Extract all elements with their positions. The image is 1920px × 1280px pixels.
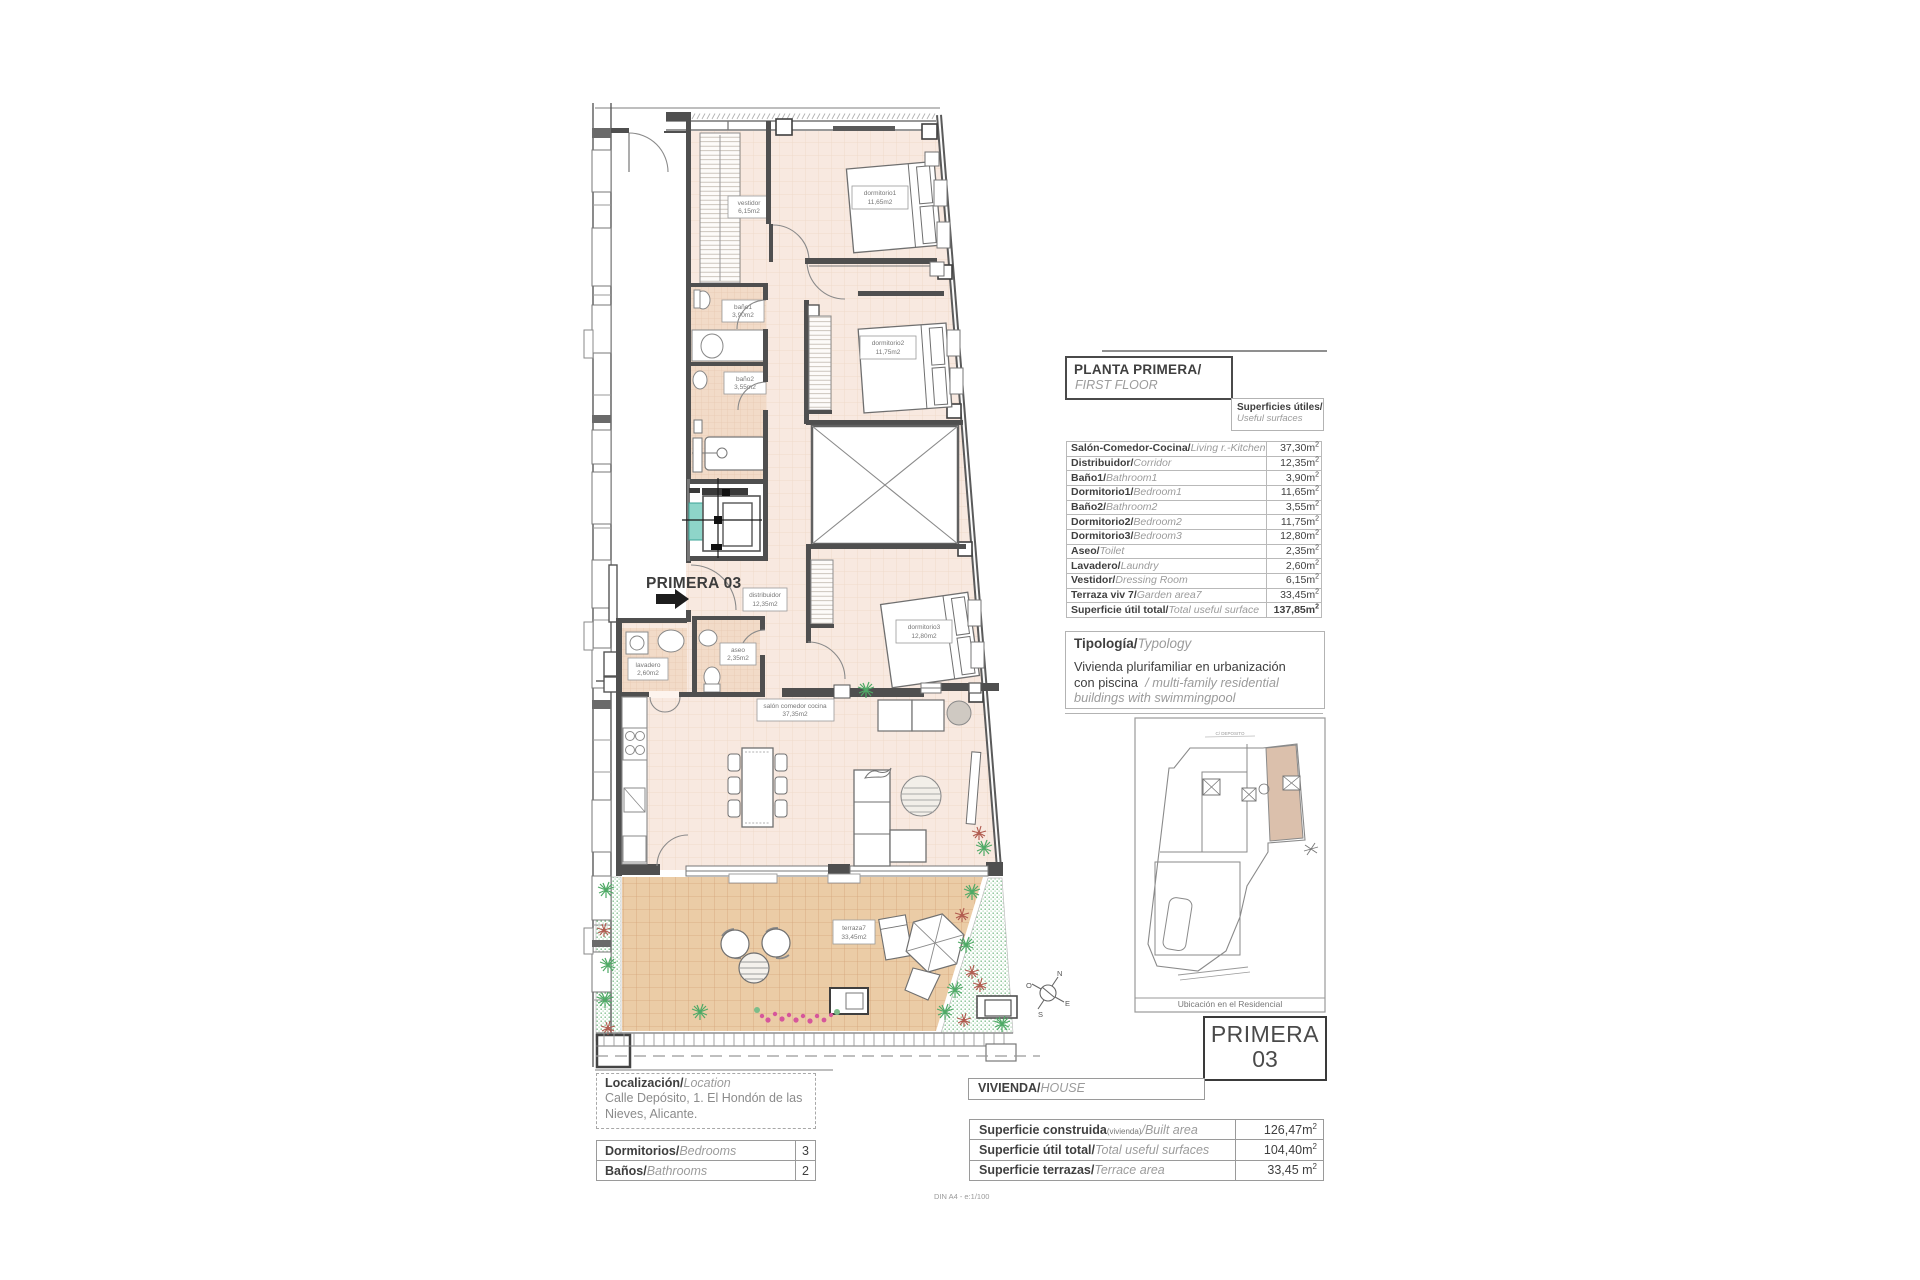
svg-text:aseo: aseo bbox=[731, 647, 745, 654]
svg-text:2,35m2: 2,35m2 bbox=[727, 655, 749, 662]
svg-text:3,90m2: 3,90m2 bbox=[732, 312, 754, 319]
svg-text:11,75m2: 11,75m2 bbox=[876, 349, 901, 356]
svg-text:33,45m2: 33,45m2 bbox=[841, 934, 867, 941]
svg-text:dormitorio3: dormitorio3 bbox=[908, 624, 941, 631]
svg-text:O: O bbox=[1026, 981, 1032, 990]
svg-text:dormitorio1: dormitorio1 bbox=[864, 190, 897, 197]
svg-text:6,15m2: 6,15m2 bbox=[738, 208, 760, 215]
svg-text:baño2: baño2 bbox=[736, 376, 754, 383]
svg-text:2,60m2: 2,60m2 bbox=[637, 670, 659, 677]
svg-text:S: S bbox=[1038, 1010, 1043, 1019]
svg-text:E: E bbox=[1065, 999, 1070, 1008]
svg-text:37,35m2: 37,35m2 bbox=[782, 711, 808, 718]
svg-text:12,80m2: 12,80m2 bbox=[911, 633, 937, 640]
svg-text:salón comedor cocina: salón comedor cocina bbox=[763, 703, 827, 710]
svg-text:Ubicación en el Residencial: Ubicación en el Residencial bbox=[1178, 999, 1283, 1009]
svg-text:distribuidor: distribuidor bbox=[749, 592, 782, 599]
svg-text:N: N bbox=[1057, 969, 1062, 978]
svg-text:dormitorio2: dormitorio2 bbox=[872, 340, 905, 347]
svg-text:lavadero: lavadero bbox=[636, 662, 661, 669]
svg-text:vestidor: vestidor bbox=[738, 200, 762, 207]
svg-text:11,65m2: 11,65m2 bbox=[868, 199, 893, 206]
svg-text:terraza7: terraza7 bbox=[842, 925, 866, 932]
svg-text:PRIMERA 03: PRIMERA 03 bbox=[646, 575, 742, 592]
svg-text:12,35m2: 12,35m2 bbox=[752, 601, 778, 608]
svg-text:C/ DEPOSITO: C/ DEPOSITO bbox=[1216, 731, 1245, 736]
